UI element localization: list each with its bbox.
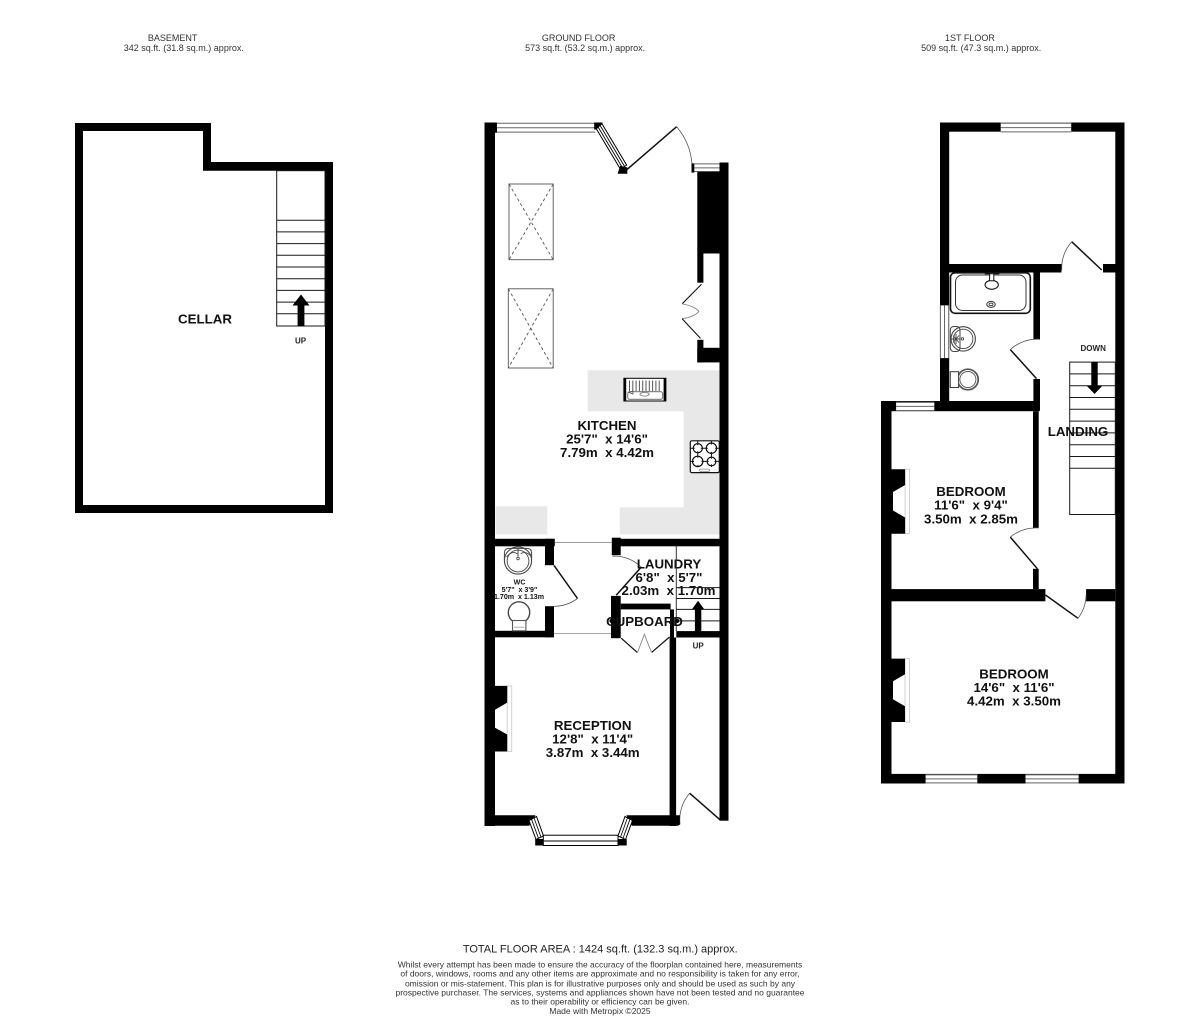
- svg-text:UP: UP: [693, 641, 705, 650]
- svg-text:573 sq.ft. (53.2 sq.m.) approx: 573 sq.ft. (53.2 sq.m.) approx.: [525, 43, 645, 53]
- svg-text:DOWN: DOWN: [1081, 344, 1107, 353]
- svg-text:CELLAR: CELLAR: [178, 312, 232, 327]
- svg-text:UP: UP: [295, 336, 307, 345]
- svg-text:CUPBOARD: CUPBOARD: [606, 614, 683, 629]
- svg-text:LANDING: LANDING: [1048, 424, 1109, 439]
- svg-text:GROUND FLOOR: GROUND FLOOR: [542, 33, 616, 43]
- svg-text:1ST FLOOR: 1ST FLOOR: [945, 33, 995, 43]
- svg-text:Made with Metropix ©2025: Made with Metropix ©2025: [549, 1006, 651, 1016]
- svg-text:1.70m x 1.13m: 1.70m x 1.13m: [494, 593, 544, 601]
- svg-text:2.03m x 1.70m: 2.03m x 1.70m: [622, 583, 716, 598]
- svg-text:4.42m x 3.50m: 4.42m x 3.50m: [967, 693, 1061, 708]
- svg-text:3.87m x 3.44m: 3.87m x 3.44m: [546, 745, 640, 760]
- svg-text:7.79m x 4.42m: 7.79m x 4.42m: [560, 445, 654, 460]
- svg-text:of doors, windows, rooms and a: of doors, windows, rooms and any other i…: [400, 969, 799, 979]
- svg-text:342 sq.ft. (31.8 sq.m.) approx: 342 sq.ft. (31.8 sq.m.) approx.: [124, 43, 244, 53]
- svg-text:BASEMENT: BASEMENT: [148, 33, 198, 43]
- svg-text:509 sq.ft. (47.3 sq.m.) approx: 509 sq.ft. (47.3 sq.m.) approx.: [921, 43, 1041, 53]
- svg-text:3.50m x 2.85m: 3.50m x 2.85m: [924, 511, 1018, 526]
- svg-text:TOTAL FLOOR AREA : 1424 sq.ft.: TOTAL FLOOR AREA : 1424 sq.ft. (132.3 sq…: [463, 944, 738, 956]
